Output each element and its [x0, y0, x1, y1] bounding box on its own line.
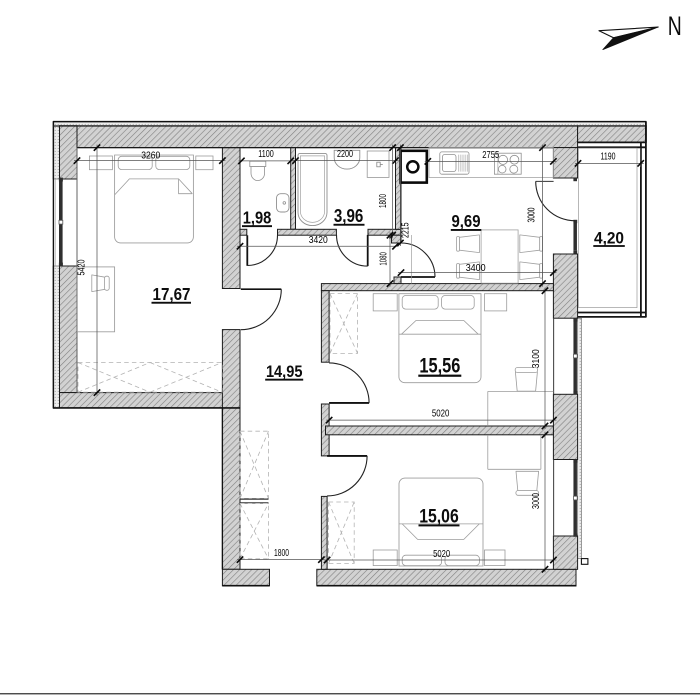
svg-text:1,98: 1,98 — [243, 207, 272, 227]
svg-text:5420: 5420 — [77, 259, 88, 275]
svg-text:3,96: 3,96 — [334, 206, 364, 226]
svg-text:5020: 5020 — [432, 408, 450, 419]
svg-text:1100: 1100 — [258, 149, 274, 160]
svg-text:2755: 2755 — [482, 150, 499, 161]
svg-text:15,56: 15,56 — [419, 355, 460, 378]
svg-text:3000: 3000 — [531, 493, 542, 509]
svg-text:5020: 5020 — [433, 549, 450, 560]
svg-text:14,95: 14,95 — [266, 362, 303, 381]
svg-text:17,67: 17,67 — [153, 284, 191, 304]
svg-text:1800: 1800 — [274, 548, 289, 559]
svg-text:3260: 3260 — [141, 150, 160, 161]
svg-text:2200: 2200 — [337, 149, 353, 160]
svg-text:3420: 3420 — [309, 235, 328, 246]
svg-text:1800: 1800 — [378, 194, 389, 208]
svg-text:3000: 3000 — [526, 207, 537, 222]
svg-text:4,20: 4,20 — [594, 229, 624, 247]
svg-text:1190: 1190 — [601, 151, 616, 162]
svg-text:9,69: 9,69 — [452, 211, 481, 231]
svg-text:3100: 3100 — [531, 349, 542, 368]
svg-text:N: N — [668, 11, 682, 41]
svg-text:1080: 1080 — [379, 252, 390, 266]
svg-text:15,06: 15,06 — [419, 505, 459, 527]
svg-text:2215: 2215 — [400, 222, 411, 238]
svg-text:3400: 3400 — [466, 263, 486, 274]
